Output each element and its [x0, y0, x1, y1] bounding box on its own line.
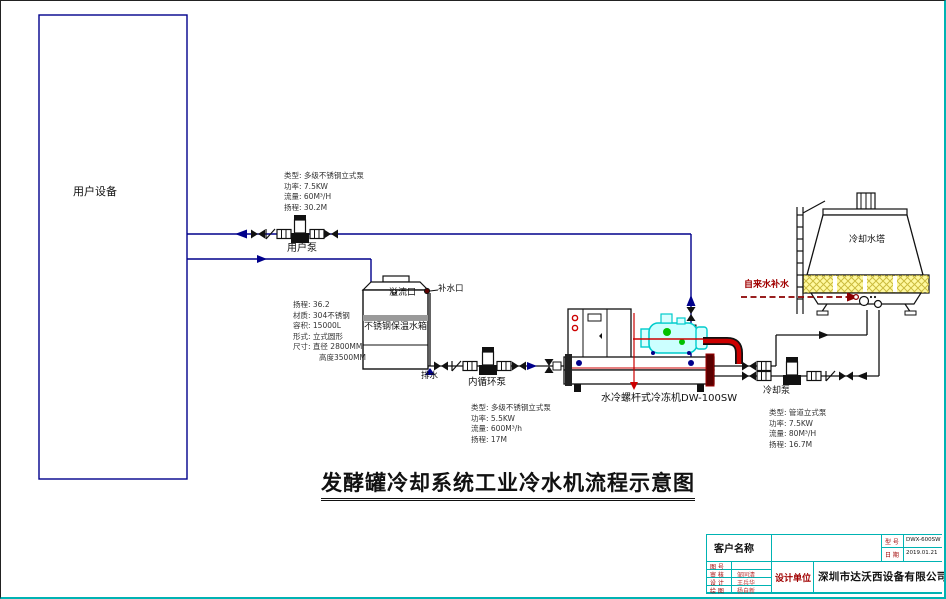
- tank-label: 不锈钢保温水箱: [364, 323, 427, 333]
- overflow-port-label: 溢流口: [389, 289, 416, 299]
- piping-diagram: [1, 1, 946, 599]
- user-equipment-box: [39, 15, 187, 479]
- chiller-control-cabinet: [568, 309, 631, 362]
- design-unit-label: 设计单位: [775, 571, 811, 584]
- tank-outlet-line: [425, 293, 564, 375]
- indicator-light-icon: [572, 325, 577, 330]
- indicator-light-icon: [572, 315, 577, 320]
- user-pump-label: 用户泵: [287, 243, 317, 254]
- customer-name-label: 客户名称: [714, 540, 754, 555]
- makeup-port-icon: [424, 288, 429, 293]
- chiller-label: 水冷螺杆式冷冻机DW-100SW: [601, 393, 737, 404]
- inner-pump-label: 内循环泵: [468, 378, 506, 388]
- date-label: 日 期: [885, 550, 899, 559]
- company-name: 深圳市达沃西设备有限公司: [818, 569, 946, 584]
- screw-compressor: [633, 314, 713, 355]
- cooling-tower-label: 冷却水塔: [849, 236, 885, 246]
- user-pump-spec: 类型: 多级不锈钢立式泵 功率: 7.5KW 流量: 60M³/H 扬程: 30…: [284, 171, 364, 213]
- drawing-sheet: 用户设备 用户泵 类型: 多级不锈钢立式泵 功率: 7.5KW 流量: 60M³…: [0, 0, 946, 599]
- drafter-value: 杨自新: [737, 586, 755, 595]
- tap-water-label: 自来水补水: [744, 281, 789, 291]
- makeup-port-label: 补水口: [438, 285, 464, 294]
- cooling-line-fittings: [742, 331, 867, 381]
- cooling-pump-symbol: [783, 357, 801, 385]
- model-value: DWX-600SW: [906, 537, 941, 543]
- inner-pump-symbol: [479, 347, 497, 375]
- user-pump-symbol: [291, 215, 309, 243]
- tank-spec: 扬程: 36.2 材质: 304不锈钢 容积: 15000L 形式: 立式圆形 …: [293, 300, 366, 363]
- control-display: [588, 314, 601, 321]
- date-value: 2019.01.21: [906, 550, 938, 556]
- cooling-tower: [797, 193, 929, 315]
- drafter-label: 绘 图: [710, 586, 724, 595]
- user-device-label: 用户设备: [73, 186, 117, 198]
- model-label: 型 号: [885, 537, 899, 546]
- inner-pump-spec: 类型: 多级不锈钢立式泵 功率: 5.5KW 流量: 600M³/h 扬程: 1…: [471, 403, 551, 445]
- page-title: 发酵罐冷却系统工业冷水机流程示意图: [321, 467, 695, 501]
- cooling-pump-spec: 类型: 管道立式泵 功率: 7.5KW 流量: 80M³/H 扬程: 16.7M: [769, 408, 826, 450]
- cooling-pump-label: 冷却泵: [763, 387, 790, 397]
- drain-label: 排水: [421, 372, 438, 381]
